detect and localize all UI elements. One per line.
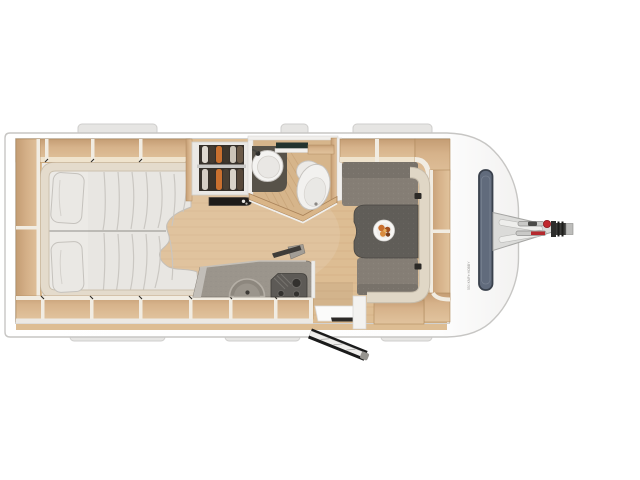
svg-text:550 KMFe HOBBY: 550 KMFe HOBBY [467,261,471,290]
